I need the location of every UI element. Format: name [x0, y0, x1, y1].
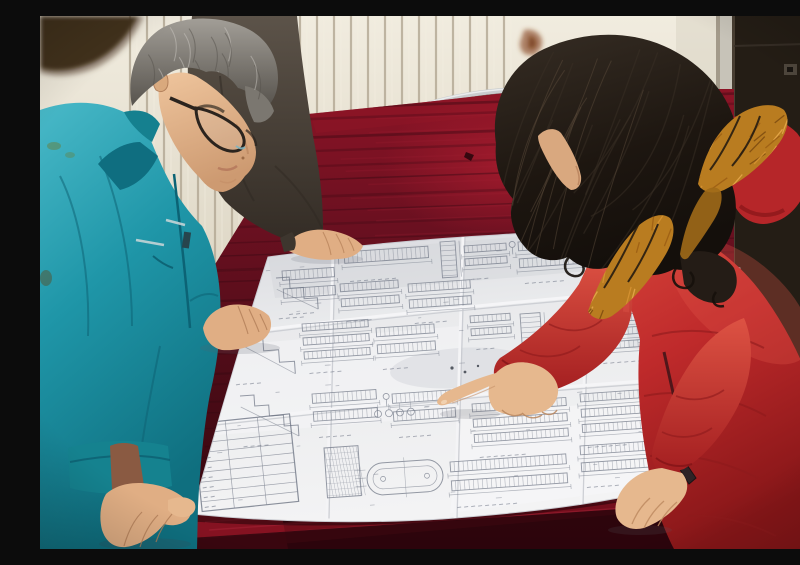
- photo-scene: Three people stand around a table covere…: [40, 16, 800, 549]
- photo-svg: [40, 16, 800, 549]
- vignette: [40, 16, 800, 549]
